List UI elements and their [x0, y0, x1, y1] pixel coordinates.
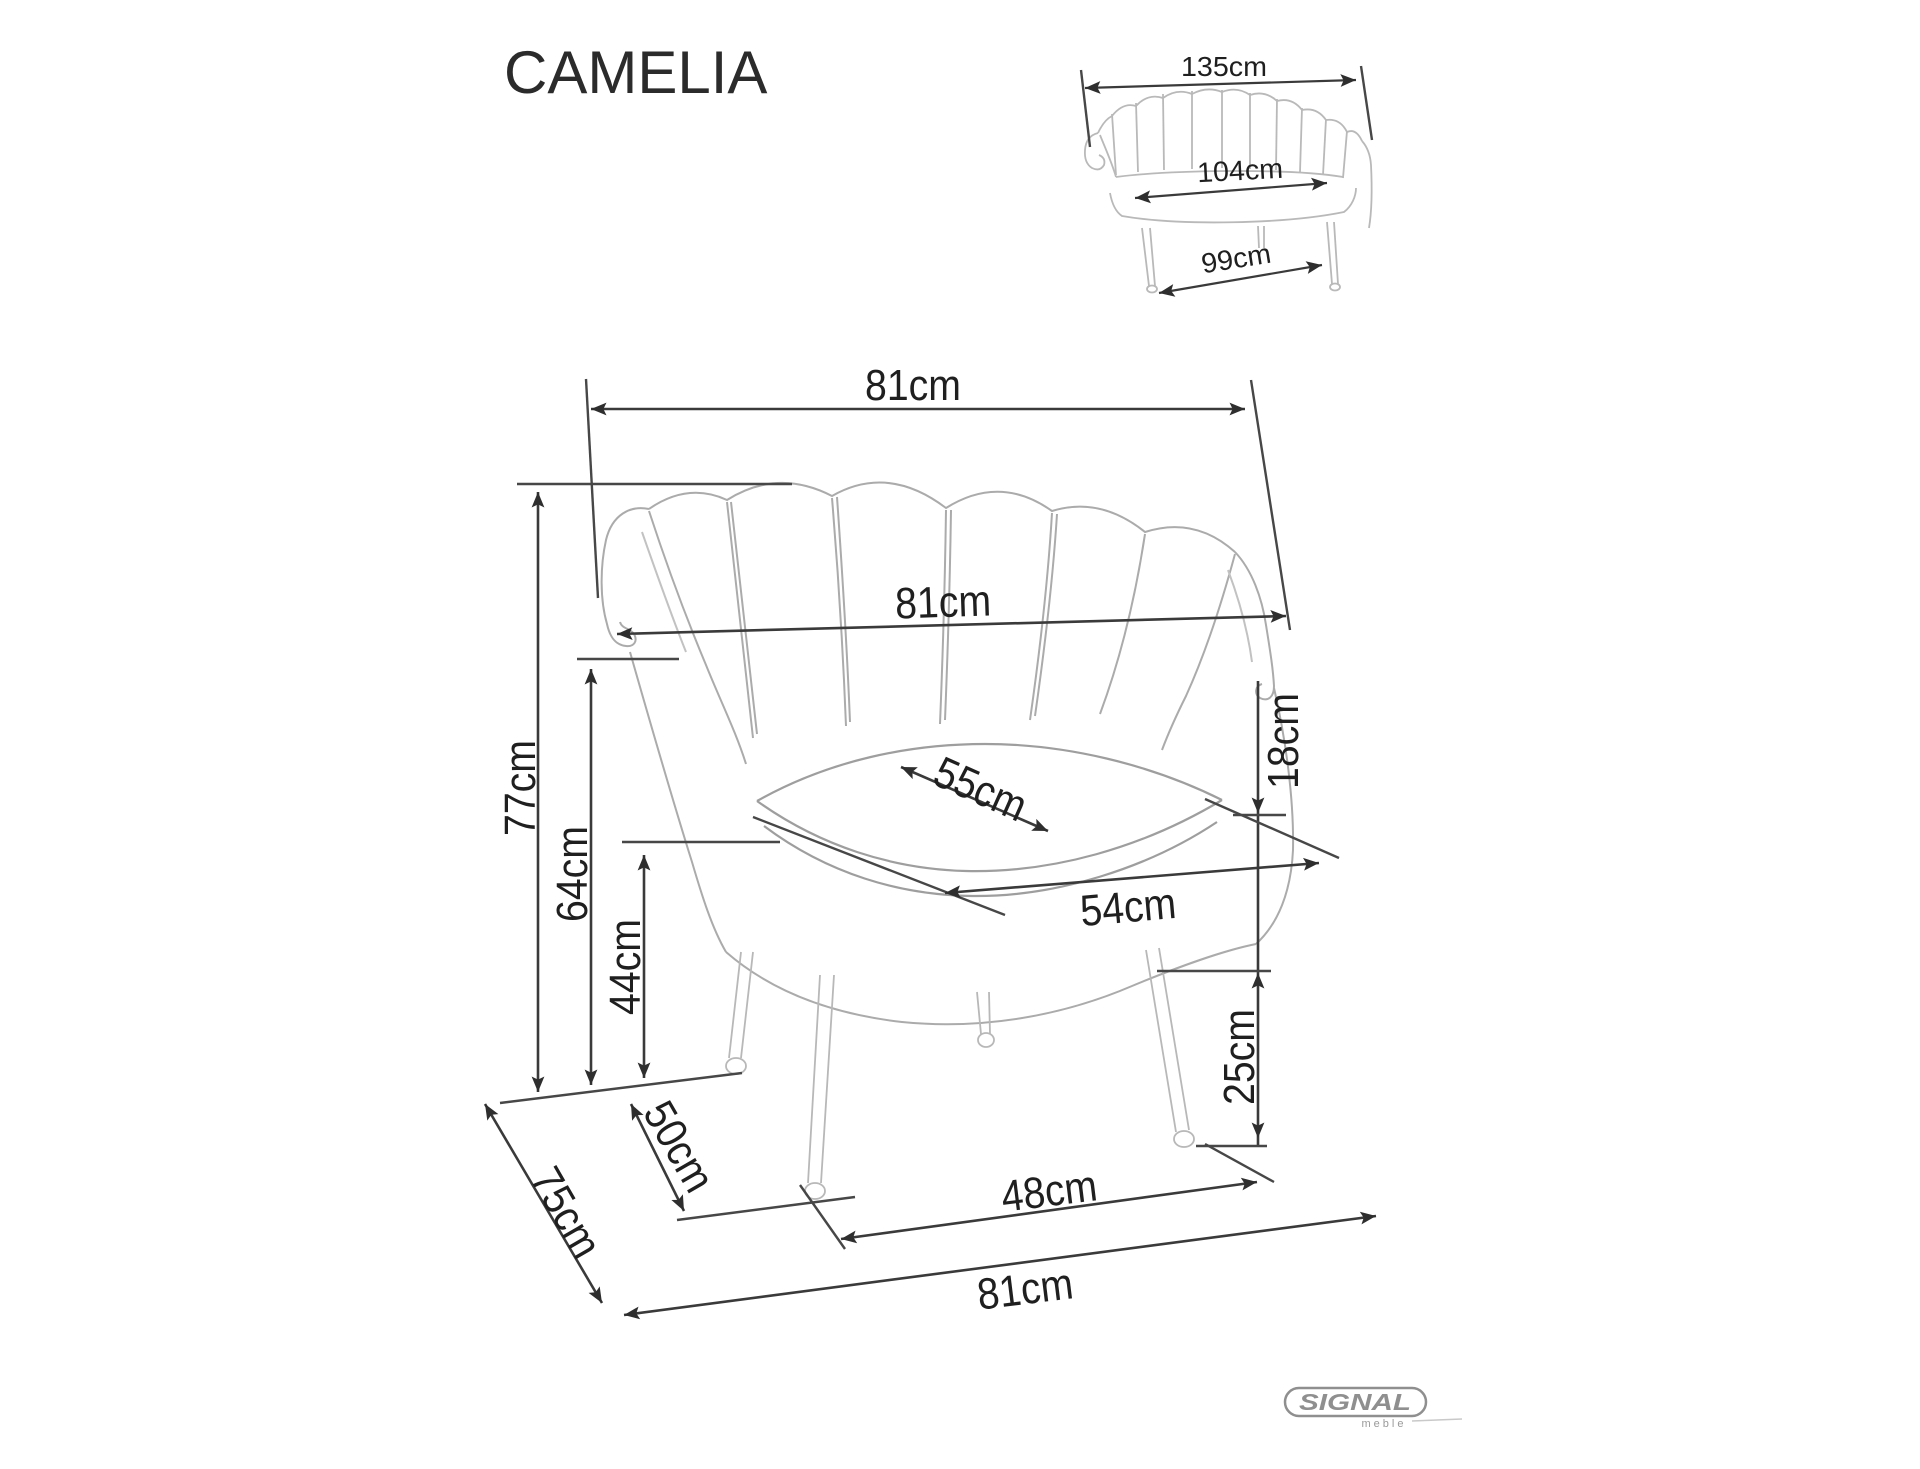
svg-text:CAMELIA: CAMELIA [504, 39, 767, 106]
svg-text:77cm: 77cm [496, 740, 545, 836]
svg-text:81cm: 81cm [894, 576, 992, 628]
svg-text:SIGNAL: SIGNAL [1299, 1389, 1411, 1415]
svg-text:18cm: 18cm [1259, 693, 1308, 789]
svg-text:44cm: 44cm [601, 919, 650, 1015]
svg-text:25cm: 25cm [1215, 1009, 1264, 1105]
svg-text:81cm: 81cm [865, 361, 961, 410]
svg-text:meble: meble [1362, 1418, 1407, 1430]
svg-text:64cm: 64cm [548, 826, 597, 922]
svg-text:54cm: 54cm [1078, 879, 1178, 936]
svg-text:104cm: 104cm [1196, 153, 1284, 188]
svg-text:135cm: 135cm [1181, 51, 1267, 82]
